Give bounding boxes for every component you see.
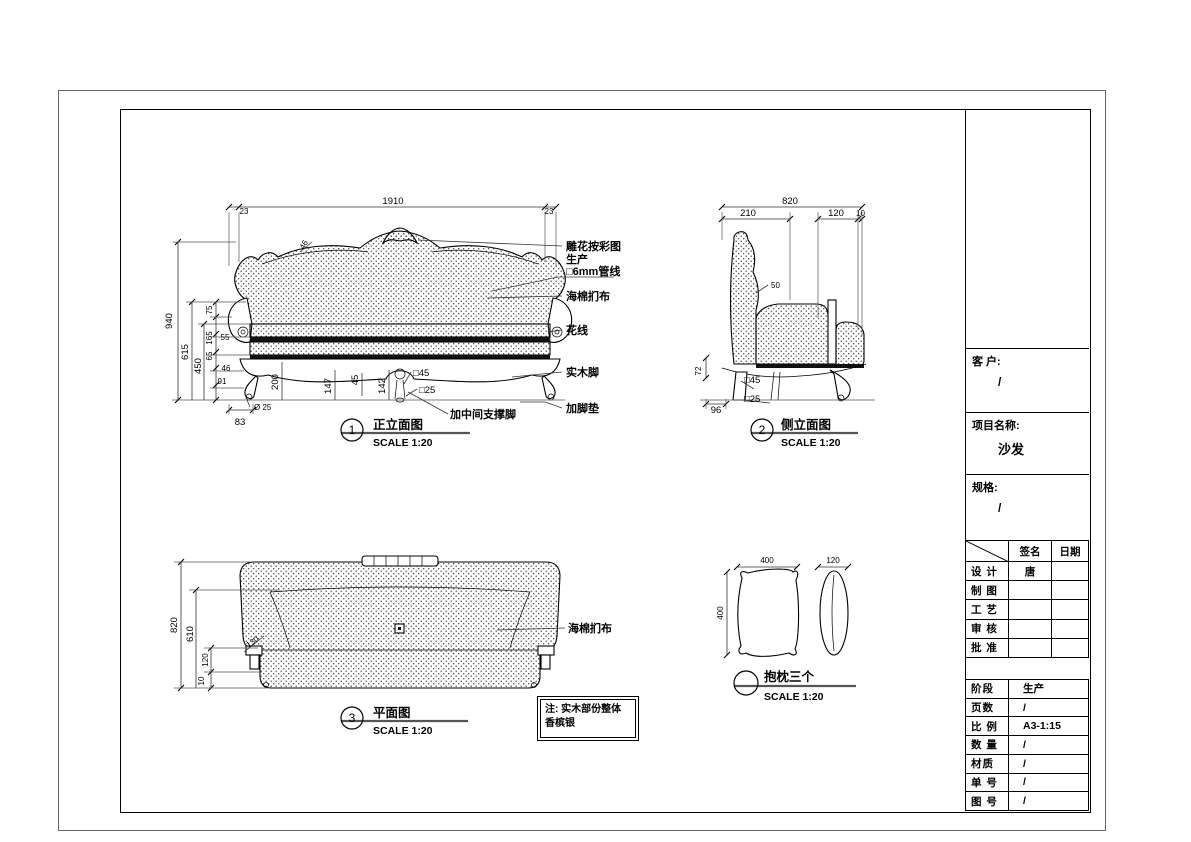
front-dim-sq25: □25 bbox=[419, 385, 435, 396]
title-block-customer-cell: 客 户: / bbox=[966, 348, 1089, 412]
sign-row-signature bbox=[1009, 600, 1052, 619]
note-box: 注: 实木部份整体 香槟银 bbox=[537, 696, 639, 741]
info-row-label: 材质 bbox=[966, 755, 1009, 774]
front-dim-overhang-right: 23 bbox=[545, 207, 554, 216]
front-callout-production: 生产 bbox=[566, 252, 588, 266]
side-caption: 2 侧立面图 SCALE 1:20 bbox=[751, 417, 858, 449]
title-block-project-cell: 项目名称: 沙发 bbox=[966, 412, 1089, 474]
info-row-label: 比 例 bbox=[966, 717, 1009, 736]
front-dim-46: 46 bbox=[222, 364, 231, 373]
title-block: 客 户: / 项目名称: 沙发 规格: / 签名 日期 设 计 唐 制 图 工 … bbox=[965, 109, 1089, 811]
signature-diagonal-cell bbox=[966, 541, 1009, 562]
front-sofa-back bbox=[235, 231, 566, 324]
sign-row-date bbox=[1052, 620, 1089, 639]
info-row-label: 页数 bbox=[966, 699, 1009, 718]
front-dim-55: 55 bbox=[221, 333, 230, 342]
sign-row-signature: 唐 bbox=[1009, 562, 1052, 581]
info-row-label: 数 量 bbox=[966, 736, 1009, 755]
side-dim-10: 10 bbox=[856, 209, 865, 218]
side-dim-72: 72 bbox=[694, 366, 703, 375]
front-callout-trim: 花线 bbox=[566, 323, 588, 337]
front-dim-45: 45 bbox=[350, 375, 361, 386]
note-line2: 香槟银 bbox=[545, 717, 631, 731]
plan-caption-number: 3 bbox=[349, 711, 356, 725]
info-row-value: / bbox=[1009, 774, 1089, 793]
front-callout-wood-leg: 实木脚 bbox=[566, 365, 599, 379]
front-dim-seat-height: 450 bbox=[193, 358, 204, 374]
plan-caption: 3 平面图 SCALE 1:20 bbox=[341, 706, 468, 737]
side-elevation-view: 820 210 120 10 50 72 96 □45 □25 2 侧立面图 S… bbox=[694, 196, 875, 449]
front-caption: 1 正立面图 SCALE 1:20 bbox=[341, 417, 470, 449]
plan-callout-sponge: 海棉扪布 bbox=[568, 621, 612, 635]
pillow-caption-scale: SCALE 1:20 bbox=[764, 691, 824, 703]
sign-row-label: 批 准 bbox=[966, 639, 1009, 658]
side-caption-scale: SCALE 1:20 bbox=[781, 437, 841, 449]
front-callout-carving: 雕花按彩图 bbox=[566, 239, 621, 253]
side-caption-title: 侧立面图 bbox=[781, 417, 831, 432]
pillow-front bbox=[738, 569, 799, 656]
side-sofa-back bbox=[731, 232, 759, 364]
side-dim-sq45: □45 bbox=[744, 375, 760, 386]
front-dim-65: 65 bbox=[205, 351, 214, 360]
front-dim-dia25: Ø 25 bbox=[254, 403, 272, 412]
info-row-value: A3-1:15 bbox=[1009, 717, 1089, 736]
side-dim-50: 50 bbox=[771, 281, 780, 290]
pillow-dim-thickness: 120 bbox=[826, 556, 840, 565]
sign-row-label: 审 核 bbox=[966, 620, 1009, 639]
front-callout-sponge: 海棉扪布 bbox=[566, 289, 610, 303]
side-dim-total-depth: 820 bbox=[782, 196, 798, 207]
info-row-value: 生产 bbox=[1009, 680, 1089, 699]
front-elevation-view: 1910 23 23 46 940 615 450 75 165 65 55 4… bbox=[164, 196, 621, 449]
pillow-caption: 抱枕三个 SCALE 1:20 bbox=[734, 669, 856, 703]
sign-row-signature bbox=[1009, 639, 1052, 658]
plan-dim-610: 610 bbox=[185, 626, 196, 642]
info-table: 阶段 生产 页数 / 比 例 A3-1:15 数 量 / 材质 / 单 号 / … bbox=[966, 679, 1089, 811]
project-label: 项目名称: bbox=[966, 413, 1089, 433]
date-column-header: 日期 bbox=[1052, 541, 1089, 562]
note-line1: 注: 实木部份整体 bbox=[545, 703, 631, 717]
front-callout-pipe: □6mm管线 bbox=[566, 264, 620, 278]
sign-row-label: 设 计 bbox=[966, 562, 1009, 581]
info-row-value: / bbox=[1009, 736, 1089, 755]
front-dim-sq45: □45 bbox=[413, 368, 429, 379]
pillow-detail-view: 400 120 400 抱枕三个 SCALE 1:20 bbox=[716, 556, 856, 703]
pillow-side bbox=[820, 571, 848, 655]
sign-row-signature bbox=[1009, 620, 1052, 639]
front-caption-title: 正立面图 bbox=[373, 417, 423, 432]
front-center-leg bbox=[395, 380, 405, 399]
front-callout-foot-pad: 加脚垫 bbox=[565, 401, 599, 415]
front-dim-back-height: 615 bbox=[180, 344, 191, 360]
side-frame-post bbox=[828, 300, 836, 364]
front-caption-number: 1 bbox=[349, 423, 356, 437]
front-dim-83: 83 bbox=[235, 417, 246, 428]
plan-dim-10: 10 bbox=[197, 676, 206, 685]
side-dim-96: 96 bbox=[711, 405, 722, 416]
plan-caption-scale: SCALE 1:20 bbox=[373, 725, 433, 737]
project-value: 沙发 bbox=[966, 433, 1089, 458]
front-dim-200: 200 bbox=[270, 374, 281, 390]
pillow-dim-width: 400 bbox=[760, 556, 774, 565]
front-dim-overhang-left: 23 bbox=[240, 207, 249, 216]
side-caption-number: 2 bbox=[759, 423, 766, 437]
plan-dim-820: 820 bbox=[169, 617, 180, 633]
plan-crest-block bbox=[362, 556, 438, 566]
plan-caption-title: 平面图 bbox=[373, 706, 411, 720]
info-row-label: 单 号 bbox=[966, 774, 1009, 793]
front-dim-91: 91 bbox=[218, 377, 227, 386]
info-row-label: 图 号 bbox=[966, 792, 1009, 811]
side-dim-sq25: □25 bbox=[744, 394, 760, 405]
signature-table: 签名 日期 设 计 唐 制 图 工 艺 审 核 批 准 bbox=[966, 540, 1089, 658]
info-row-label: 阶段 bbox=[966, 680, 1009, 699]
front-crest-carving bbox=[383, 228, 417, 243]
pillow-caption-title: 抱枕三个 bbox=[764, 669, 815, 684]
sign-row-signature bbox=[1009, 581, 1052, 600]
front-callout-center-leg: 加中间支撑脚 bbox=[449, 407, 516, 421]
front-seat-band-lower bbox=[250, 342, 550, 355]
front-caption-scale: SCALE 1:20 bbox=[373, 437, 433, 449]
front-dim-75: 75 bbox=[205, 305, 214, 314]
sign-row-date bbox=[1052, 600, 1089, 619]
side-dim-210: 210 bbox=[740, 208, 756, 219]
customer-value: / bbox=[966, 369, 1089, 389]
side-middle-leg bbox=[771, 372, 780, 400]
front-apron bbox=[240, 359, 560, 382]
front-dim-147: 147 bbox=[323, 378, 334, 394]
side-front-roll bbox=[836, 322, 864, 366]
sign-row-date bbox=[1052, 639, 1089, 658]
side-arm bbox=[756, 304, 828, 364]
sign-row-date bbox=[1052, 562, 1089, 581]
title-block-spec-cell: 规格: / bbox=[966, 474, 1089, 540]
sign-row-label: 制 图 bbox=[966, 581, 1009, 600]
side-dim-120: 120 bbox=[828, 208, 844, 219]
spec-label: 规格: bbox=[966, 475, 1089, 495]
info-row-value: / bbox=[1009, 699, 1089, 718]
front-dim-total-height: 940 bbox=[164, 313, 175, 329]
plan-dim-120: 120 bbox=[201, 653, 210, 667]
signature-column-header: 签名 bbox=[1009, 541, 1052, 562]
front-seat-band-upper bbox=[250, 324, 550, 337]
info-row-value: / bbox=[1009, 792, 1089, 811]
pillow-dim-height: 400 bbox=[716, 606, 725, 620]
spec-value: / bbox=[966, 495, 1089, 515]
cad-sheet: { "front_view": { "caption_no": "1", "ca… bbox=[0, 0, 1191, 842]
front-dim-165: 165 bbox=[205, 331, 214, 345]
front-dim-total-width: 1910 bbox=[382, 196, 403, 207]
front-dim-142: 142 bbox=[377, 378, 388, 394]
sign-row-label: 工 艺 bbox=[966, 600, 1009, 619]
customer-label: 客 户: bbox=[966, 349, 1089, 369]
info-row-value: / bbox=[1009, 755, 1089, 774]
sign-row-date bbox=[1052, 581, 1089, 600]
